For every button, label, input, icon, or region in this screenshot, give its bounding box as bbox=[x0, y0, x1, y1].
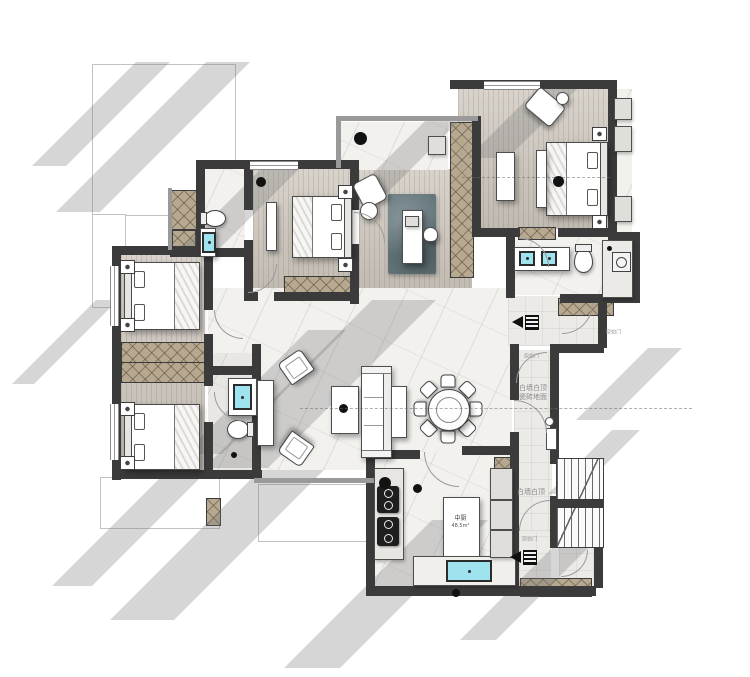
wardrobe-column bbox=[450, 122, 474, 278]
washer-icon bbox=[612, 252, 631, 272]
dining-set bbox=[428, 389, 468, 429]
bed-headboard bbox=[344, 197, 351, 257]
dining-chair bbox=[441, 375, 456, 388]
wardrobe bbox=[121, 342, 208, 363]
wall-segment bbox=[206, 366, 256, 375]
entry-door-icon bbox=[512, 315, 540, 329]
pillow bbox=[331, 204, 342, 221]
pillow bbox=[134, 304, 145, 321]
bed-bench bbox=[266, 202, 277, 251]
toilet-tank bbox=[200, 212, 207, 225]
stair-landing bbox=[557, 499, 603, 508]
pillow bbox=[134, 444, 145, 461]
section-marker-icon bbox=[256, 177, 266, 187]
pillow bbox=[134, 271, 145, 288]
wall-panel bbox=[546, 428, 557, 450]
pillow bbox=[587, 152, 598, 169]
dining-table bbox=[428, 389, 470, 431]
wall-segment bbox=[112, 246, 214, 255]
corridor-finish-note: 白墙白顶 bbox=[510, 488, 552, 497]
nightstand bbox=[592, 215, 607, 229]
entry-arrow-icon bbox=[512, 316, 523, 328]
nightstand bbox=[120, 260, 135, 274]
nightstand bbox=[120, 402, 135, 416]
cabinet bbox=[170, 190, 198, 230]
shower-drain-icon bbox=[231, 452, 237, 458]
dining-chair bbox=[414, 402, 427, 417]
nightstand bbox=[120, 456, 135, 470]
kitchen-area: 48.5m² bbox=[443, 523, 478, 531]
plant-icon bbox=[354, 132, 367, 145]
cooktop-icon bbox=[377, 517, 399, 546]
dining-chair bbox=[441, 431, 456, 444]
sofa-arm bbox=[362, 367, 391, 374]
note-line2: 瓷砖地面 bbox=[512, 393, 554, 402]
toilet-tank bbox=[247, 422, 254, 437]
wall-segment bbox=[462, 446, 514, 455]
toilet bbox=[227, 420, 249, 439]
balcony-shelf bbox=[428, 136, 446, 155]
wall-segment bbox=[598, 300, 607, 348]
closet-shelf bbox=[614, 98, 632, 120]
sofa-arm bbox=[362, 450, 391, 457]
kitchen-label: 中厨 48.5m² bbox=[443, 514, 478, 531]
wall-segment bbox=[594, 544, 603, 588]
window bbox=[250, 161, 298, 170]
thin-wall bbox=[168, 188, 172, 250]
note-line1: 白墙白顶 bbox=[510, 488, 552, 497]
kitchen-sink bbox=[446, 560, 492, 582]
balcony-window-wall bbox=[336, 116, 341, 168]
door-tag: 原始门 bbox=[606, 330, 621, 335]
bed-bedroom4 bbox=[124, 404, 200, 470]
window bbox=[110, 404, 119, 460]
note-line1: 白墙白顶 bbox=[512, 384, 554, 393]
wall-segment bbox=[556, 344, 604, 353]
cooktop-icon bbox=[377, 486, 399, 513]
tall-cabinet bbox=[490, 500, 513, 530]
wall-segment bbox=[204, 250, 213, 310]
stairwell bbox=[556, 458, 604, 548]
bed-throw bbox=[174, 405, 199, 469]
toilet bbox=[204, 210, 226, 227]
doorbell-icon bbox=[545, 417, 554, 426]
nightstand bbox=[120, 318, 135, 332]
entry-door-icon bbox=[510, 550, 538, 564]
nightstand bbox=[338, 185, 353, 199]
entry-arrow-icon bbox=[510, 551, 521, 563]
desk-monitor bbox=[405, 216, 419, 227]
pillow bbox=[134, 413, 145, 430]
dining-chair bbox=[470, 402, 483, 417]
corridor-finish-note: 白墙白顶 瓷砖地面 bbox=[512, 384, 554, 402]
wall-segment bbox=[112, 470, 208, 479]
shadow-band bbox=[576, 348, 682, 420]
washer-drum bbox=[616, 257, 627, 268]
desk-chair bbox=[423, 227, 438, 242]
bed-bedroom2 bbox=[292, 196, 352, 258]
wardrobe bbox=[121, 362, 208, 383]
toilet-tank bbox=[575, 244, 592, 252]
bed-throw bbox=[174, 263, 199, 329]
door-leaf-icon bbox=[523, 550, 537, 565]
sofa-chaise bbox=[391, 386, 407, 438]
nightstand bbox=[338, 258, 353, 272]
axis-line bbox=[300, 408, 692, 409]
axis-line bbox=[462, 177, 610, 178]
door-tag: 原始门 bbox=[522, 537, 537, 542]
wall-segment bbox=[274, 292, 356, 301]
door-tag: 原始门 bbox=[524, 354, 539, 359]
wall-segment bbox=[204, 334, 213, 386]
section-marker-icon bbox=[413, 484, 422, 493]
window bbox=[484, 81, 540, 90]
nightstand bbox=[592, 127, 607, 141]
door-leaf-icon bbox=[525, 315, 539, 330]
shower-drain-icon bbox=[607, 246, 612, 251]
floor-plan: 中厨 48.5m² 白墙白顶 瓷砖地面 白墙白顶 原始门 原始门 原始门 bbox=[0, 0, 750, 677]
closet-shelf bbox=[614, 126, 632, 152]
sofa bbox=[361, 366, 392, 458]
sofa-seam bbox=[364, 425, 383, 426]
closet-shelf bbox=[614, 196, 632, 222]
kitchen-name: 中厨 bbox=[443, 514, 478, 523]
balcony-window-wall bbox=[336, 116, 478, 121]
sofa-back bbox=[383, 367, 391, 457]
pillow bbox=[587, 189, 598, 206]
sofa-seam bbox=[364, 397, 383, 398]
bed-bench bbox=[536, 150, 547, 208]
section-marker-icon bbox=[553, 176, 564, 187]
bed-headboard bbox=[600, 143, 607, 215]
sink-basin bbox=[202, 232, 216, 253]
wall-segment bbox=[244, 166, 253, 210]
bed-throw bbox=[293, 197, 313, 257]
section-marker-icon bbox=[452, 589, 460, 597]
plant-icon bbox=[379, 477, 391, 489]
side-table bbox=[556, 92, 569, 105]
pillow bbox=[331, 233, 342, 250]
tv-console bbox=[257, 380, 274, 446]
wall-segment bbox=[366, 586, 596, 596]
shadow-band bbox=[12, 300, 118, 384]
living-window-wall bbox=[254, 478, 384, 483]
bed-bedroom3 bbox=[124, 262, 200, 330]
window bbox=[110, 266, 119, 326]
wall-segment bbox=[558, 228, 610, 237]
